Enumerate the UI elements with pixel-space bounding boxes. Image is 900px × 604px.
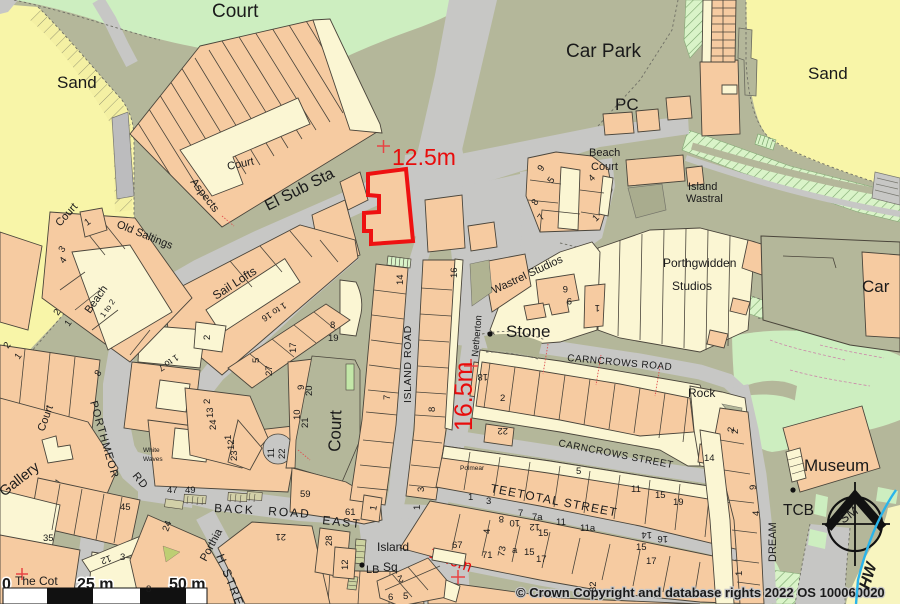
- svg-text:12.5m: 12.5m: [392, 144, 456, 170]
- svg-text:7: 7: [382, 395, 393, 400]
- svg-text:14: 14: [395, 274, 406, 285]
- svg-text:1: 1: [595, 302, 600, 313]
- svg-text:6: 6: [563, 283, 568, 294]
- svg-text:TCB: TCB: [783, 502, 814, 519]
- svg-text:Court: Court: [212, 1, 259, 22]
- svg-text:23: 23: [229, 450, 240, 461]
- svg-text:White: White: [143, 447, 160, 454]
- svg-text:35: 35: [43, 533, 54, 544]
- svg-text:LB: LB: [366, 564, 379, 576]
- svg-text:32: 32: [588, 581, 599, 592]
- svg-text:61: 61: [345, 507, 356, 518]
- svg-text:16: 16: [657, 533, 668, 544]
- svg-text:19: 19: [328, 333, 339, 344]
- svg-text:11: 11: [266, 448, 277, 458]
- svg-text:Waves: Waves: [143, 456, 163, 463]
- svg-text:17: 17: [288, 342, 299, 353]
- svg-text:Studios: Studios: [672, 279, 712, 293]
- svg-text:12: 12: [226, 439, 237, 450]
- svg-text:8: 8: [427, 407, 438, 412]
- svg-text:Beach: Beach: [589, 147, 620, 159]
- svg-text:4: 4: [482, 529, 493, 534]
- svg-text:67: 67: [452, 540, 463, 551]
- svg-text:28: 28: [324, 535, 335, 546]
- svg-text:15: 15: [538, 528, 549, 539]
- svg-text:2: 2: [202, 335, 213, 340]
- svg-text:Polmear: Polmear: [460, 465, 485, 472]
- svg-text:17: 17: [536, 554, 547, 565]
- svg-text:3: 3: [486, 496, 491, 507]
- svg-text:BACK: BACK: [214, 501, 255, 517]
- svg-text:15: 15: [636, 542, 647, 553]
- svg-text:13: 13: [205, 407, 216, 418]
- svg-text:The Cot: The Cot: [15, 574, 58, 588]
- svg-text:Car: Car: [862, 277, 890, 296]
- svg-text:21: 21: [275, 531, 286, 542]
- svg-text:22: 22: [497, 425, 508, 436]
- svg-text:Island: Island: [688, 181, 717, 193]
- svg-text:8: 8: [499, 513, 504, 524]
- svg-text:17: 17: [646, 556, 657, 567]
- svg-text:Court: Court: [591, 161, 618, 173]
- svg-text:3: 3: [416, 487, 427, 492]
- svg-text:Stone: Stone: [506, 322, 550, 341]
- svg-text:59: 59: [300, 489, 311, 500]
- svg-text:15: 15: [524, 547, 535, 558]
- svg-text:Porthgwidden: Porthgwidden: [663, 256, 736, 270]
- svg-text:21: 21: [300, 417, 311, 428]
- svg-text:11a: 11a: [580, 523, 596, 534]
- svg-text:1: 1: [734, 571, 745, 576]
- svg-text:9: 9: [567, 295, 572, 306]
- svg-text:24: 24: [208, 419, 219, 430]
- svg-text:4: 4: [751, 511, 762, 516]
- svg-text:6: 6: [388, 592, 393, 603]
- svg-text:27: 27: [264, 365, 275, 376]
- svg-text:14: 14: [641, 529, 652, 540]
- svg-text:18: 18: [477, 371, 488, 382]
- svg-text:© Crown Copyright and database: © Crown Copyright and database rights 20…: [516, 585, 885, 600]
- svg-text:8: 8: [330, 320, 335, 331]
- svg-text:ROAD: ROAD: [268, 504, 312, 521]
- svg-text:ISLAND ROAD: ISLAND ROAD: [402, 325, 414, 403]
- svg-text:19: 19: [673, 497, 684, 508]
- svg-text:16.5m: 16.5m: [450, 362, 478, 431]
- svg-text:5: 5: [403, 591, 408, 602]
- svg-text:11: 11: [556, 517, 566, 528]
- svg-text:45: 45: [120, 502, 131, 513]
- svg-text:1: 1: [412, 505, 423, 510]
- svg-text:49: 49: [185, 485, 196, 496]
- svg-text:a: a: [512, 545, 518, 556]
- svg-text:15: 15: [655, 490, 666, 501]
- svg-text:Sand: Sand: [57, 73, 97, 92]
- svg-text:Rock: Rock: [688, 386, 716, 400]
- svg-text:47: 47: [167, 485, 178, 496]
- svg-text:1: 1: [468, 492, 473, 503]
- svg-text:5: 5: [251, 358, 262, 363]
- svg-text:71: 71: [482, 550, 493, 561]
- svg-text:1: 1: [223, 435, 234, 440]
- svg-text:Sq: Sq: [383, 560, 398, 574]
- svg-text:2: 2: [202, 399, 213, 404]
- svg-text:3: 3: [120, 552, 125, 563]
- svg-text:Sand: Sand: [808, 64, 848, 83]
- svg-text:12: 12: [340, 559, 351, 570]
- svg-text:Court: Court: [325, 410, 345, 452]
- svg-text:Museum: Museum: [804, 456, 869, 475]
- svg-text:73: 73: [496, 545, 509, 557]
- svg-text:11: 11: [631, 484, 641, 495]
- svg-text:9: 9: [748, 485, 759, 490]
- svg-text:Island: Island: [377, 540, 409, 554]
- svg-text:PC: PC: [615, 95, 639, 114]
- svg-text:14: 14: [704, 453, 715, 464]
- svg-text:22: 22: [277, 448, 288, 459]
- svg-text:10: 10: [509, 517, 520, 528]
- svg-text:2: 2: [500, 393, 505, 404]
- svg-text:DREAM: DREAM: [767, 522, 779, 562]
- svg-text:Car Park: Car Park: [566, 41, 641, 62]
- svg-text:20: 20: [304, 385, 315, 396]
- svg-text:16: 16: [449, 267, 460, 278]
- svg-text:5: 5: [576, 466, 581, 477]
- svg-text:8: 8: [146, 584, 151, 595]
- svg-text:2: 2: [730, 429, 741, 434]
- svg-text:Wastral: Wastral: [686, 193, 723, 205]
